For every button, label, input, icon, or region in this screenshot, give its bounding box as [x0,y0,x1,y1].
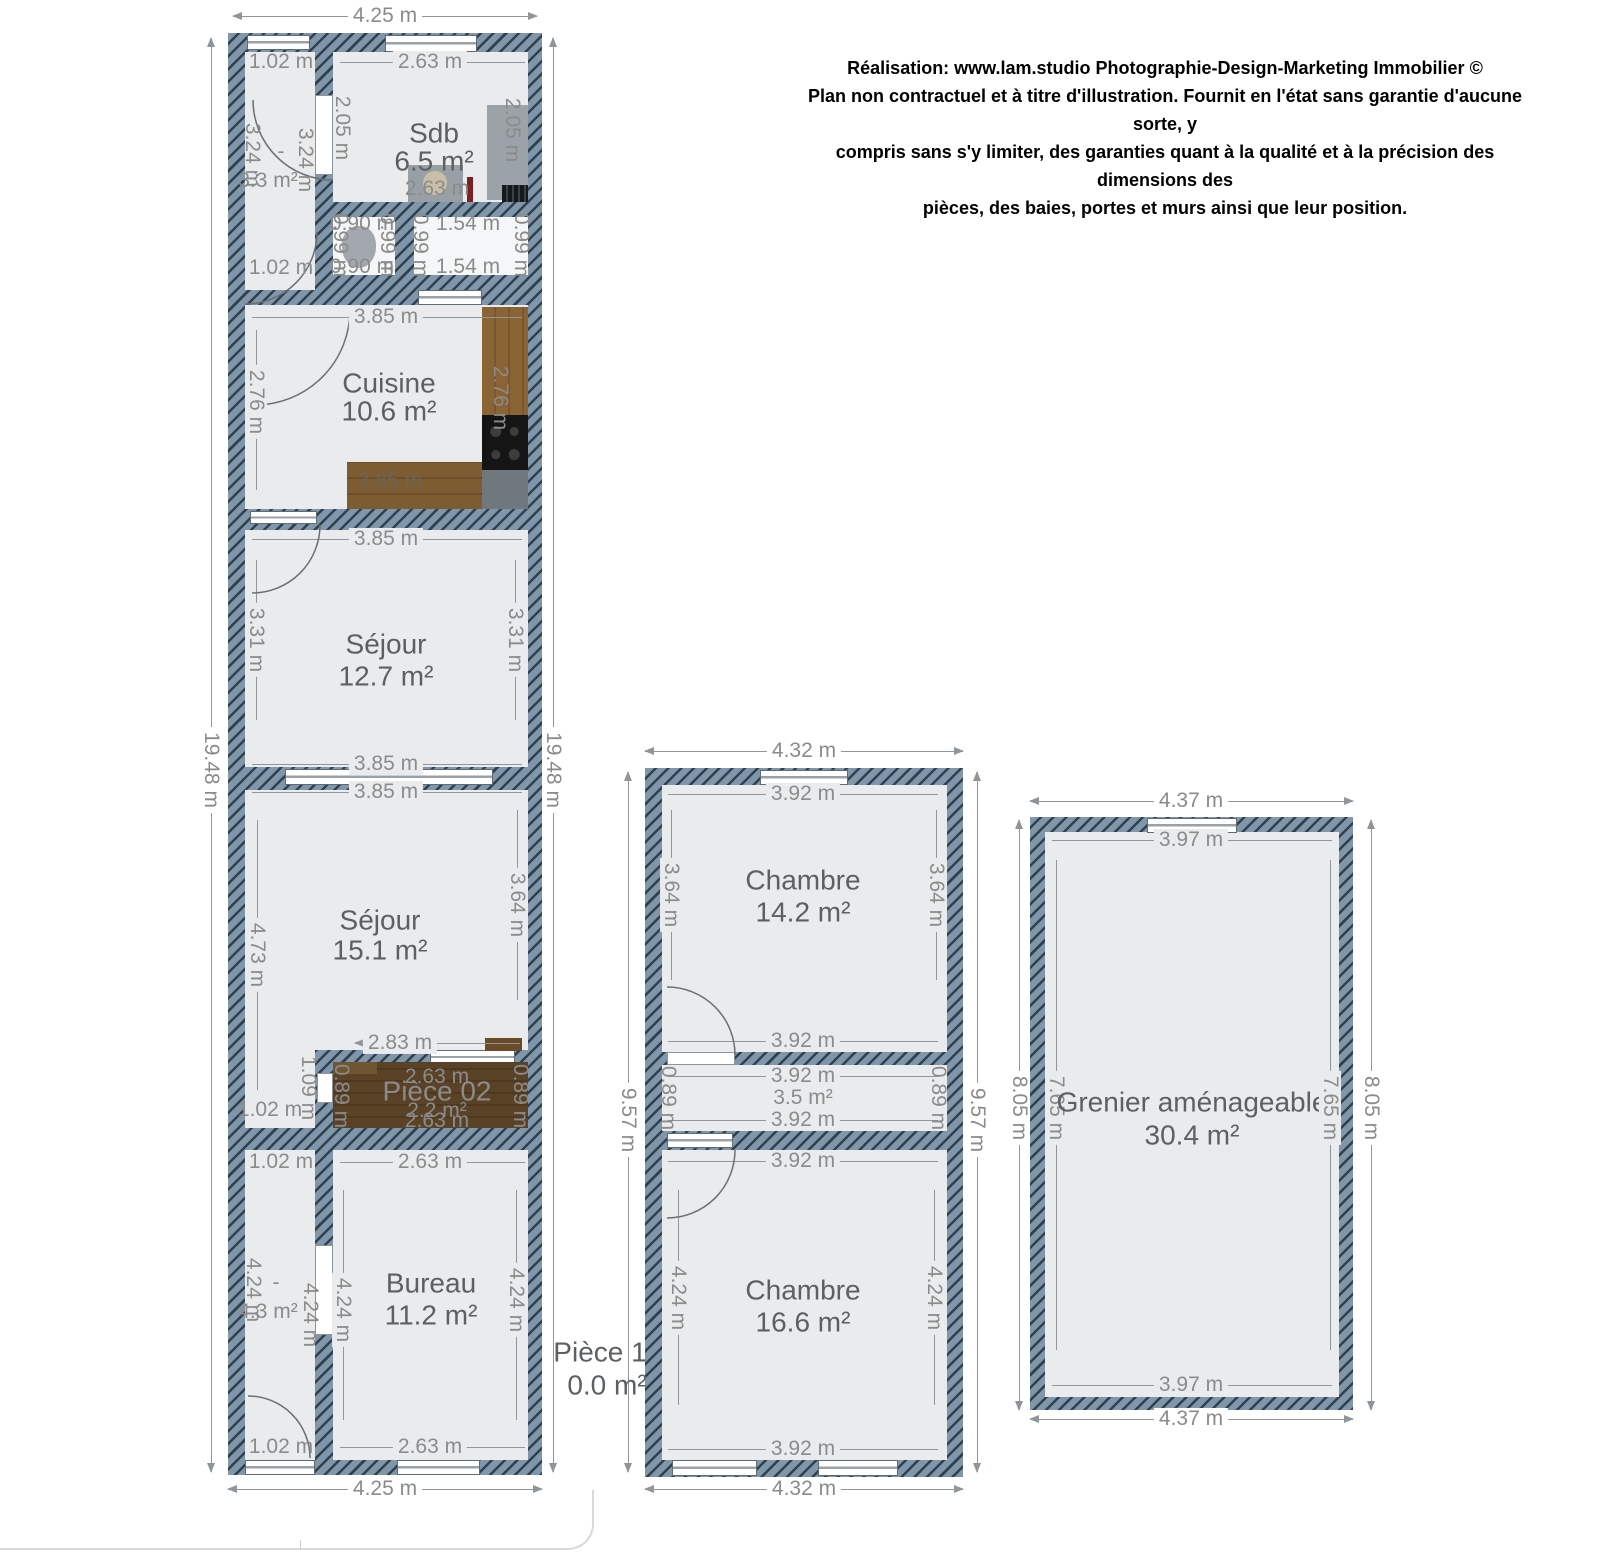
dim-label: 3.85 m [349,528,423,550]
room-name: Pièce 1 [553,1337,646,1366]
dim-label: 0.99 m [409,213,431,277]
dim-label: 3.92 m [766,1150,840,1172]
dim-label: 4.32 m [767,740,841,762]
dim-label: 2.63 m [393,1151,467,1173]
dim-label: 4.73 m [246,918,268,992]
dim-label: 1.02 m [249,51,313,73]
door-arc [252,525,320,593]
dim-label: 4.24 m [332,1273,354,1347]
dim-label: 1.54 m [436,213,500,235]
dim-label: 3.31 m [504,603,526,677]
dim-label: 4.24 m [923,1261,945,1335]
room-area: 15.1 m² [333,935,428,964]
floor-plan-page: Réalisation: www.lam.studio Photographie… [0,0,1620,1556]
disclaimer-line-3: compris sans s'y limiter, des garanties … [805,138,1525,194]
dim-label: 3.24 m [294,128,316,192]
dim-label: 3.85 m [349,753,423,775]
dim-label: 1.54 m [436,256,500,278]
dim-label: 2.63 m [393,1436,467,1458]
dim-label: 2.83 m [363,1032,437,1054]
room-area: 16.6 m² [756,1307,851,1336]
dim-label: 4.32 m [767,1478,841,1500]
room-name: Grenier aménageable [1057,1087,1328,1116]
dim-label: 0.89 m [927,1066,949,1130]
dim-label: 1.02 m [249,1151,313,1173]
room-area: 14.2 m² [756,897,851,926]
room-area: 6.5 m² [394,146,473,175]
room-area: 10.6 m² [342,396,437,425]
disclaimer-line-2: Plan non contractuel et à titre d'illust… [805,82,1525,138]
dim-label: 4.25 m [348,1478,422,1500]
dim-label: 3.85 m [349,781,423,803]
dim-label: 1.02 m [249,1436,313,1458]
dim-label: 3.92 m [766,1109,840,1131]
room-area: 0.0 m² [567,1370,646,1399]
dim-label: 3.92 m [766,1030,840,1052]
dim-label: 0.99 m [510,213,532,277]
dim-label: 3.92 m [766,1438,840,1460]
room-name: Séjour [346,629,427,658]
dim-label: 8.05 m [1360,1071,1382,1145]
dim-label: 0.90 m [330,256,394,278]
room-name: Séjour [340,905,421,934]
room-name: Cuisine [342,368,435,397]
dim-label: 3.92 m [766,783,840,805]
dim-label: 3.97 m [1154,829,1228,851]
disclaimer-line-1: Réalisation: www.lam.studio Photographie… [805,54,1525,82]
door-arc [667,987,735,1055]
door-arc [667,1150,735,1218]
dim-label: 4.25 m [348,5,422,27]
dim-label: 3.97 m [1154,1374,1228,1396]
dim-label: 2.05 m [501,98,523,162]
dim-label: 3.64 m [506,868,528,942]
dim-label: 19.48 m [200,727,222,813]
dim-label: 4.37 m [1154,1408,1228,1430]
dim-label: 3.64 m [925,858,947,932]
dim-label: 0.89 m [330,1064,352,1128]
dim-label: 9.57 m [966,1083,988,1157]
dim-label: 9.57 m [617,1083,639,1157]
dim-label: 8.05 m [1008,1071,1030,1145]
dim-label: 2.76 m [489,366,511,430]
dim-label: 4.24 m [505,1263,527,1337]
dim-label: 3.64 m [660,858,682,932]
room-area: 4.3 m² [238,1301,298,1323]
dim-label: 0.89 m [509,1064,531,1128]
room-name: Chambre [745,865,860,894]
room-area: 3.3 m² [238,170,298,192]
dim-label: 19.48 m [542,727,564,813]
room-name: Bureau [386,1268,476,1297]
dim-label: 4.37 m [1154,790,1228,812]
dim-label: 3.31 m [245,603,267,677]
room-name: Sdb [409,118,459,147]
dim-label: 0.89 m [657,1066,679,1130]
room-area: 12.7 m² [339,661,434,690]
dim-label: 7.65 m [1319,1071,1341,1145]
room-name: Chambre [745,1275,860,1304]
dim-label: 1.02 m [238,1099,302,1121]
room-area: 3.5 m² [768,1087,838,1109]
dim-label: 2.05 m [331,96,353,160]
dim-label: 2.63 m [405,178,469,200]
dim-label: - [273,1272,280,1294]
dim-label: 4.24 m [667,1261,689,1335]
dim-label: 2.63 m [393,51,467,73]
dim-label: 2.76 m [245,365,267,439]
disclaimer: Réalisation: www.lam.studio Photographie… [805,54,1525,222]
dim-label: 2.63 m [405,1110,469,1132]
dim-label: 3.85 m [358,470,422,492]
dim-label: - [278,141,285,163]
dim-label: 4.24 m [299,1283,321,1347]
door-arc [255,310,350,405]
disclaimer-line-4: pièces, des baies, portes et murs ainsi … [805,194,1525,222]
room-area: 11.2 m² [385,1300,478,1329]
room-area: 30.4 m² [1145,1120,1240,1149]
dim-label: 3.85 m [349,306,423,328]
dim-label: 3.92 m [766,1065,840,1087]
dim-label: 1.02 m [249,257,313,279]
